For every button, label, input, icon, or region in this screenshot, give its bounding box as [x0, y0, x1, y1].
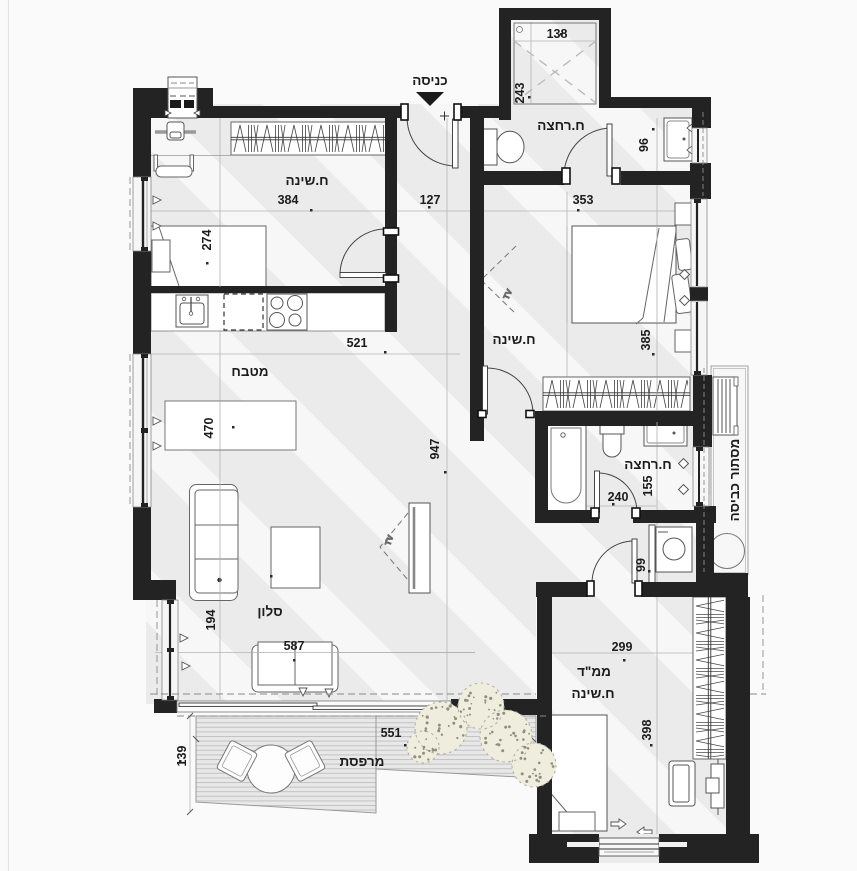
svg-text:ח.רחצה: ח.רחצה — [537, 118, 584, 133]
svg-text:ח.רחצה: ח.רחצה — [624, 457, 671, 472]
svg-text:ח.שינה: ח.שינה — [492, 332, 535, 347]
svg-text:מסתור כביסה: מסתור כביסה — [727, 439, 742, 522]
svg-text:כניסה: כניסה — [412, 73, 448, 88]
svg-text:384: 384 — [278, 193, 299, 207]
svg-text:385: 385 — [639, 330, 653, 351]
svg-text:127: 127 — [420, 193, 441, 207]
svg-text:ח.שינה: ח.שינה — [285, 173, 328, 188]
svg-text:194: 194 — [204, 610, 218, 631]
svg-text:מרפסת: מרפסת — [340, 754, 385, 769]
svg-text:947: 947 — [428, 439, 442, 460]
svg-text:274: 274 — [200, 230, 214, 251]
svg-text:99: 99 — [634, 558, 648, 572]
svg-text:353: 353 — [573, 193, 594, 207]
svg-text:521: 521 — [347, 336, 368, 350]
svg-text:96: 96 — [637, 138, 651, 152]
svg-text:398: 398 — [640, 720, 654, 741]
svg-text:139: 139 — [175, 746, 189, 767]
svg-text:ח.שינה: ח.שינה — [571, 686, 614, 701]
svg-text:587: 587 — [284, 639, 305, 653]
svg-text:ממ"ד: ממ"ד — [577, 664, 611, 679]
svg-text:155: 155 — [641, 476, 655, 497]
svg-text:מטבח: מטבח — [231, 364, 268, 379]
svg-text:551: 551 — [381, 726, 402, 740]
svg-text:240: 240 — [608, 490, 629, 504]
svg-text:470: 470 — [202, 418, 216, 439]
svg-text:סלון: סלון — [257, 604, 282, 619]
svg-text:138: 138 — [547, 27, 568, 41]
svg-text:299: 299 — [612, 640, 633, 654]
svg-text:243: 243 — [513, 83, 527, 104]
